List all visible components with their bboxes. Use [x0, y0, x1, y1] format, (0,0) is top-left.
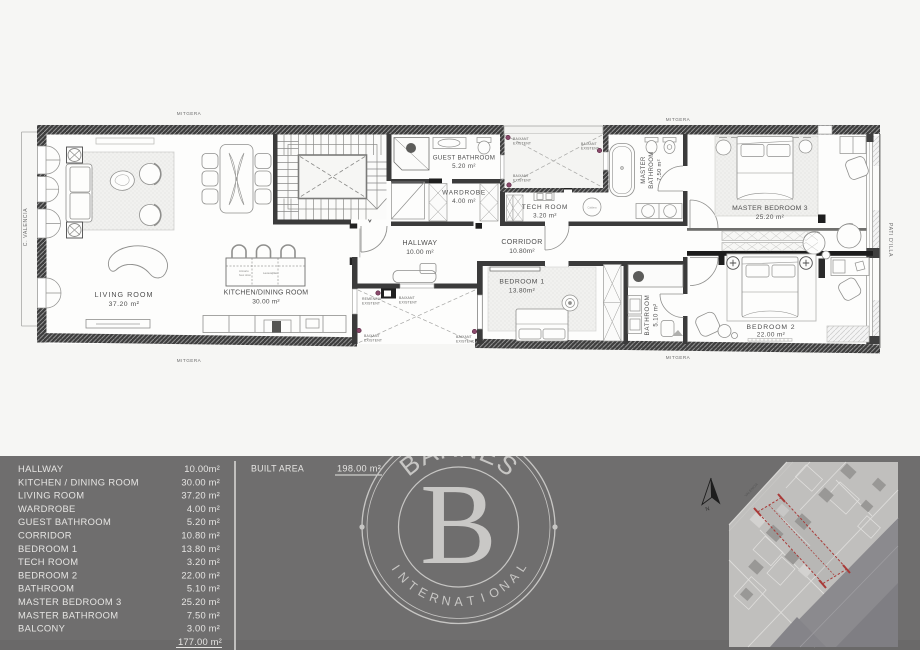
- svg-text:EXISTENT: EXISTENT: [364, 338, 382, 342]
- svg-text:25.20 m²: 25.20 m²: [181, 596, 220, 607]
- svg-text:MITGERA: MITGERA: [666, 117, 691, 122]
- svg-text:10.00m²: 10.00m²: [184, 463, 220, 474]
- svg-text:B: B: [420, 461, 497, 588]
- svg-text:EXISTENT: EXISTENT: [399, 300, 417, 304]
- svg-text:BEDROOM 1: BEDROOM 1: [18, 543, 77, 554]
- svg-text:10.80m²: 10.80m²: [509, 248, 535, 255]
- svg-text:25.20 m²: 25.20 m²: [756, 214, 784, 221]
- svg-text:BAIXANT: BAIXANT: [513, 137, 529, 141]
- svg-text:3.20 m²: 3.20 m²: [187, 556, 220, 567]
- svg-text:13.80 m²: 13.80 m²: [181, 543, 220, 554]
- svg-text:BAIXANT: BAIXANT: [399, 296, 415, 300]
- svg-text:3.20 m²: 3.20 m²: [533, 213, 557, 220]
- svg-text:BAIXANT: BAIXANT: [513, 174, 529, 178]
- svg-text:4.00 m²: 4.00 m²: [187, 503, 220, 514]
- svg-text:37.20 m²: 37.20 m²: [181, 490, 220, 501]
- svg-text:KITCHEN/DINING ROOM: KITCHEN/DINING ROOM: [224, 290, 309, 297]
- svg-text:EXISTENT: EXISTENT: [362, 301, 380, 305]
- svg-text:37.20 m²: 37.20 m²: [109, 301, 140, 308]
- svg-text:10.00 m²: 10.00 m²: [406, 249, 434, 256]
- svg-text:30.00 m²: 30.00 m²: [252, 299, 280, 306]
- svg-text:5.10 m²: 5.10 m²: [654, 303, 660, 326]
- svg-text:LIVING ROOM: LIVING ROOM: [95, 290, 154, 299]
- svg-text:BATHROOM: BATHROOM: [18, 583, 74, 594]
- svg-text:WARDROBE: WARDROBE: [442, 190, 486, 197]
- svg-text:BALCONY: BALCONY: [18, 623, 66, 634]
- svg-text:5.20 m²: 5.20 m²: [452, 163, 476, 170]
- svg-text:CORRIDOR: CORRIDOR: [18, 530, 72, 541]
- svg-text:5.10 m²: 5.10 m²: [187, 583, 220, 594]
- svg-text:REMENEIA: REMENEIA: [362, 297, 382, 301]
- svg-text:MASTER BATHROOM: MASTER BATHROOM: [18, 609, 118, 620]
- svg-text:5.20 m²: 5.20 m²: [187, 516, 220, 527]
- svg-text:BEDROOM 1: BEDROOM 1: [499, 279, 544, 286]
- svg-text:4.00 m²: 4.00 m²: [452, 198, 476, 205]
- svg-text:30.00 m²: 30.00 m²: [181, 476, 220, 487]
- svg-text:PATI D'ILLA: PATI D'ILLA: [887, 223, 893, 257]
- svg-text:EXISTENT: EXISTENT: [456, 339, 474, 343]
- svg-text:3.00 m²: 3.00 m²: [187, 623, 220, 634]
- svg-text:BATHROOM: BATHROOM: [644, 295, 651, 336]
- svg-text:EXISTENT: EXISTENT: [513, 141, 531, 145]
- svg-text:10.80 m²: 10.80 m²: [181, 530, 220, 541]
- svg-text:MITGERA: MITGERA: [177, 358, 202, 363]
- svg-text:WARDROBE: WARDROBE: [18, 503, 76, 514]
- svg-text:EXISTENT: EXISTENT: [513, 178, 531, 182]
- svg-text:HALLWAY: HALLWAY: [403, 240, 438, 247]
- svg-text:KITCHEN / DINING ROOM: KITCHEN / DINING ROOM: [18, 476, 139, 487]
- svg-text:fuex stral.: fuex stral.: [239, 273, 251, 277]
- svg-text:LIVING ROOM: LIVING ROOM: [18, 490, 84, 501]
- svg-text:22.00 m²: 22.00 m²: [181, 569, 220, 580]
- svg-text:BAIXANT: BAIXANT: [581, 142, 597, 146]
- svg-text:13.80m²: 13.80m²: [509, 288, 535, 295]
- svg-text:BEDROOM 2: BEDROOM 2: [747, 324, 796, 331]
- svg-text:BEDROOM 2: BEDROOM 2: [18, 569, 77, 580]
- svg-text:GUEST BATHROOM: GUEST BATHROOM: [18, 516, 111, 527]
- svg-text:MITGERA: MITGERA: [177, 111, 202, 116]
- svg-text:BAIXANT: BAIXANT: [456, 335, 472, 339]
- svg-text:CORRIDOR: CORRIDOR: [501, 239, 542, 246]
- svg-text:TECH ROOM: TECH ROOM: [522, 204, 568, 211]
- svg-text:MASTER BEDROOM 3: MASTER BEDROOM 3: [732, 205, 808, 212]
- svg-text:MASTER: MASTER: [641, 156, 647, 184]
- svg-text:GUEST BATHROOM: GUEST BATHROOM: [433, 155, 495, 162]
- svg-text:MITGERA: MITGERA: [666, 355, 691, 360]
- svg-text:BUILT AREA: BUILT AREA: [251, 464, 304, 474]
- svg-text:BATHROOM: BATHROOM: [649, 151, 655, 188]
- svg-text:22.00 m²: 22.00 m²: [757, 332, 785, 339]
- svg-text:198.00 m²: 198.00 m²: [337, 464, 381, 474]
- svg-text:7.50 m²: 7.50 m²: [657, 159, 663, 181]
- svg-text:177.00 m²: 177.00 m²: [178, 636, 222, 647]
- svg-text:MASTER BEDROOM 3: MASTER BEDROOM 3: [18, 596, 122, 607]
- svg-text:BAIXANT: BAIXANT: [364, 334, 380, 338]
- svg-text:EXISTENT: EXISTENT: [581, 146, 599, 150]
- svg-text:HALLWAY: HALLWAY: [18, 463, 64, 474]
- svg-text:Caldera: Caldera: [587, 206, 597, 210]
- svg-text:Lavavajillas: Lavavajillas: [263, 271, 278, 275]
- svg-text:7.50 m²: 7.50 m²: [187, 609, 220, 620]
- svg-text:TECH ROOM: TECH ROOM: [18, 556, 78, 567]
- svg-text:C. VALENCIA: C. VALENCIA: [23, 208, 29, 247]
- svg-text:A: A: [454, 595, 463, 609]
